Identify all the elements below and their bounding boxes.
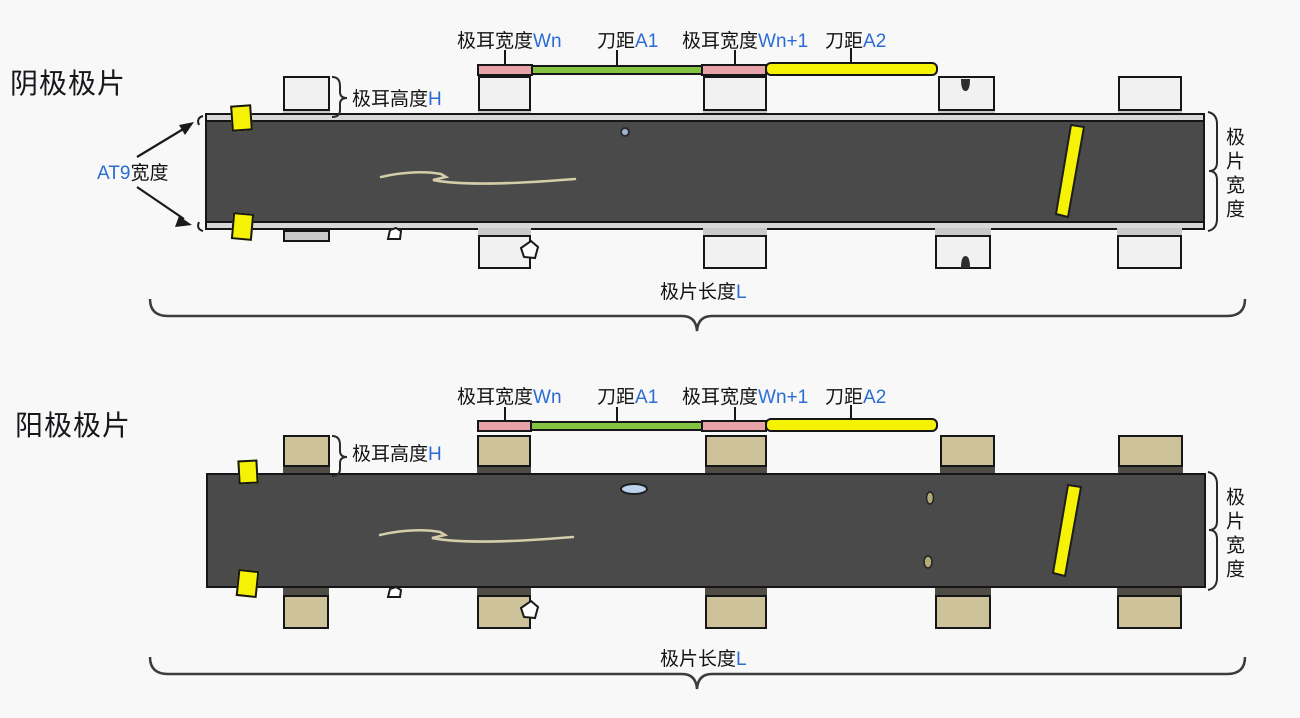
defect-yellow-mark [236, 569, 260, 598]
bar-tab-width-wn [477, 64, 533, 76]
tab-height-bracket [332, 77, 347, 117]
label-tab-height: 极耳高度H [352, 439, 442, 466]
bar-tab-width-wn1 [701, 420, 767, 432]
anode-top-tab-4 [940, 435, 995, 474]
leader-tick [504, 407, 506, 421]
label-blade-a2: 刀距A2 [825, 382, 886, 409]
anode-strip [206, 473, 1206, 588]
anode-bottom-tab-5 [1117, 588, 1182, 629]
edge-notch-defect [388, 587, 401, 597]
tab-height-bracket [332, 436, 347, 476]
cathode-bottom-tab-3 [703, 228, 767, 269]
cathode-top-tab-5 [1118, 76, 1182, 118]
cathode-top-tab-1 [283, 76, 330, 118]
cathode-top-tab-3 [703, 76, 767, 118]
cathode-title: 阴极极片 [10, 62, 126, 102]
anode-top-tab-5 [1118, 435, 1183, 474]
defect-yellow-mark [230, 104, 253, 131]
label-tab-width-wn1: 极耳宽度Wn+1 [682, 26, 808, 53]
label-blade-a1: 刀距A1 [597, 26, 658, 53]
bar-tab-width-wn1 [701, 64, 767, 76]
label-tab-width-wn: 极耳宽度Wn [457, 382, 562, 409]
anode-top-tab-1 [283, 435, 330, 474]
cathode-top-tab-4 [938, 76, 995, 118]
label-sheet-length: 极片长度L [660, 277, 747, 304]
anode-bottom-tab-1 [283, 588, 329, 629]
anode-bottom-tab-3 [705, 588, 767, 629]
cathode-bottom-tab-1-stub [283, 230, 330, 242]
leader-tick [850, 405, 852, 419]
label-sheet-width: 极片宽度 [1224, 127, 1243, 223]
leader-tick [504, 50, 506, 65]
cathode-top-tab-2 [478, 76, 531, 118]
defect-yellow-mark [231, 212, 254, 241]
sheet-width-bracket [1208, 112, 1217, 231]
bar-blade-a1 [530, 421, 703, 431]
label-sheet-length: 极片长度L [660, 644, 747, 671]
bar-blade-a2 [765, 418, 938, 432]
label-tab-height: 极耳高度H [352, 84, 442, 111]
bar-blade-a1 [531, 65, 703, 75]
label-at9-width: AT9宽度 [97, 158, 168, 185]
cathode-strip [205, 113, 1205, 230]
defect-yellow-mark [237, 459, 258, 484]
leader-tick [850, 48, 852, 63]
anode-bottom-tab-2 [477, 588, 531, 629]
leader-tick [616, 407, 618, 421]
bar-tab-width-wn [477, 420, 532, 432]
label-sheet-width: 极片宽度 [1224, 487, 1243, 583]
anode-top-tab-2 [477, 435, 531, 474]
cathode-bottom-tab-2 [478, 228, 531, 269]
label-tab-width-wn1: 极耳宽度Wn+1 [682, 382, 808, 409]
foil-edge-top [207, 115, 1203, 122]
label-blade-a2: 刀距A2 [825, 26, 886, 53]
sheet-width-bracket [1208, 472, 1217, 590]
label-blade-a1: 刀距A1 [597, 382, 658, 409]
leader-tick [734, 50, 736, 65]
anode-title: 阳极极片 [15, 404, 131, 444]
at9-arrow-down-icon [137, 187, 203, 231]
anode-bottom-tab-4 [935, 588, 991, 629]
label-tab-width-wn: 极耳宽度Wn [457, 26, 562, 53]
foil-edge-bottom [207, 221, 1203, 228]
cathode-bottom-tab-5 [1117, 228, 1182, 269]
leader-tick [734, 407, 736, 421]
anode-top-tab-3 [705, 435, 767, 474]
diagram-lineart-overlay [0, 0, 1300, 718]
bar-blade-a2 [765, 62, 938, 76]
cathode-bottom-tab-4 [935, 228, 991, 269]
electrode-sheet-diagram: 阴极极片 极耳宽度Wn 刀距A1 极耳宽度Wn+1 刀距A2 极耳高度H [0, 0, 1300, 718]
at9-arrow-up-icon [137, 116, 203, 157]
leader-tick [616, 50, 618, 65]
